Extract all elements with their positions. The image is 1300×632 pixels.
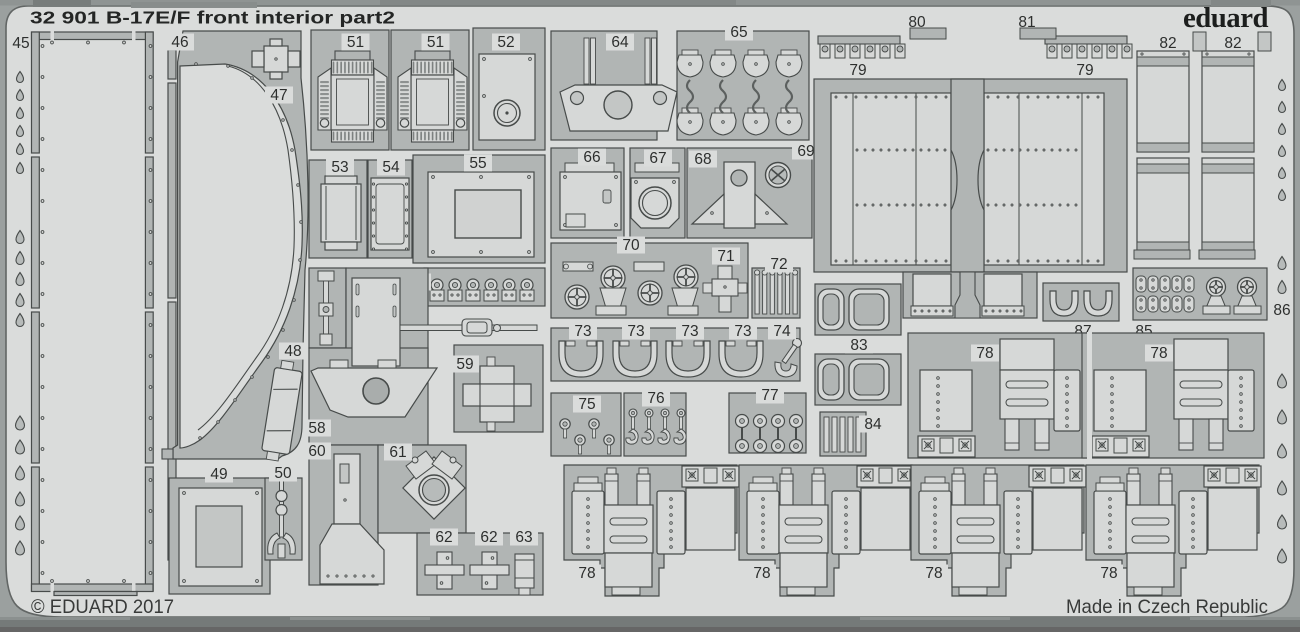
svg-text:73: 73	[734, 323, 751, 340]
svg-text:72: 72	[770, 256, 787, 273]
svg-text:78: 78	[925, 565, 942, 582]
svg-text:82: 82	[1224, 35, 1241, 52]
svg-text:65: 65	[730, 24, 747, 41]
svg-text:69: 69	[797, 143, 814, 160]
svg-text:61: 61	[389, 444, 406, 461]
svg-text:77: 77	[761, 387, 778, 404]
svg-text:53: 53	[331, 159, 348, 176]
svg-text:62: 62	[435, 529, 452, 546]
svg-text:© EDUARD 2017: © EDUARD 2017	[31, 597, 174, 618]
svg-text:47: 47	[270, 87, 287, 104]
svg-text:32 901 B-17E/F front interior: 32 901 B-17E/F front interior part2	[30, 8, 395, 28]
svg-text:51: 51	[347, 34, 364, 51]
svg-text:60: 60	[308, 443, 326, 460]
svg-text:68: 68	[694, 151, 711, 168]
svg-text:71: 71	[717, 248, 734, 265]
svg-text:83: 83	[850, 337, 867, 354]
svg-text:75: 75	[578, 396, 595, 413]
svg-text:eduard: eduard	[1183, 2, 1268, 34]
svg-text:48: 48	[284, 343, 301, 360]
svg-text:78: 78	[976, 345, 993, 362]
svg-text:45: 45	[12, 35, 29, 52]
svg-text:64: 64	[611, 34, 629, 51]
svg-text:84: 84	[864, 416, 882, 433]
svg-text:82: 82	[1159, 35, 1176, 52]
svg-text:70: 70	[622, 237, 640, 254]
svg-text:78: 78	[1150, 345, 1167, 362]
svg-text:78: 78	[1100, 565, 1117, 582]
svg-text:73: 73	[627, 323, 644, 340]
svg-text:66: 66	[583, 149, 600, 166]
svg-text:62: 62	[480, 529, 497, 546]
svg-text:79: 79	[849, 62, 866, 79]
svg-text:74: 74	[773, 323, 791, 340]
svg-text:49: 49	[210, 466, 227, 483]
svg-text:73: 73	[574, 323, 591, 340]
svg-text:63: 63	[515, 529, 532, 546]
svg-text:86: 86	[1273, 302, 1290, 319]
svg-text:54: 54	[382, 159, 400, 176]
svg-text:50: 50	[274, 465, 292, 482]
svg-text:58: 58	[308, 420, 325, 437]
svg-text:Made in Czech Republic: Made in Czech Republic	[1066, 596, 1268, 618]
svg-text:79: 79	[1076, 62, 1093, 79]
svg-text:78: 78	[753, 565, 770, 582]
svg-text:73: 73	[681, 323, 698, 340]
svg-text:76: 76	[647, 390, 664, 407]
svg-text:46: 46	[171, 34, 188, 51]
svg-text:67: 67	[649, 150, 666, 167]
svg-text:78: 78	[578, 565, 595, 582]
svg-text:55: 55	[469, 155, 486, 172]
svg-text:59: 59	[456, 356, 473, 373]
svg-text:51: 51	[427, 34, 444, 51]
svg-text:52: 52	[497, 34, 514, 51]
